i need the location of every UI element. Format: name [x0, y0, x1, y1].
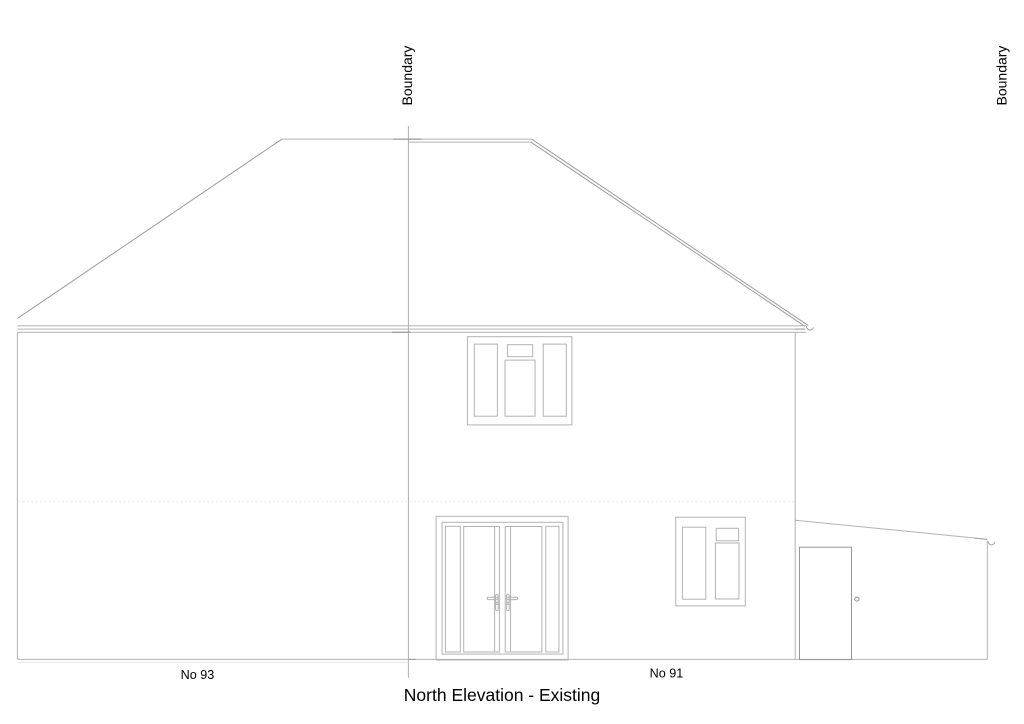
svg-text:No 91: No 91 — [650, 667, 684, 681]
svg-text:North Elevation - Existing: North Elevation - Existing — [404, 685, 600, 705]
svg-text:Boundary: Boundary — [399, 46, 415, 106]
svg-text:Boundary: Boundary — [994, 46, 1010, 106]
svg-text:No 93: No 93 — [181, 668, 215, 682]
